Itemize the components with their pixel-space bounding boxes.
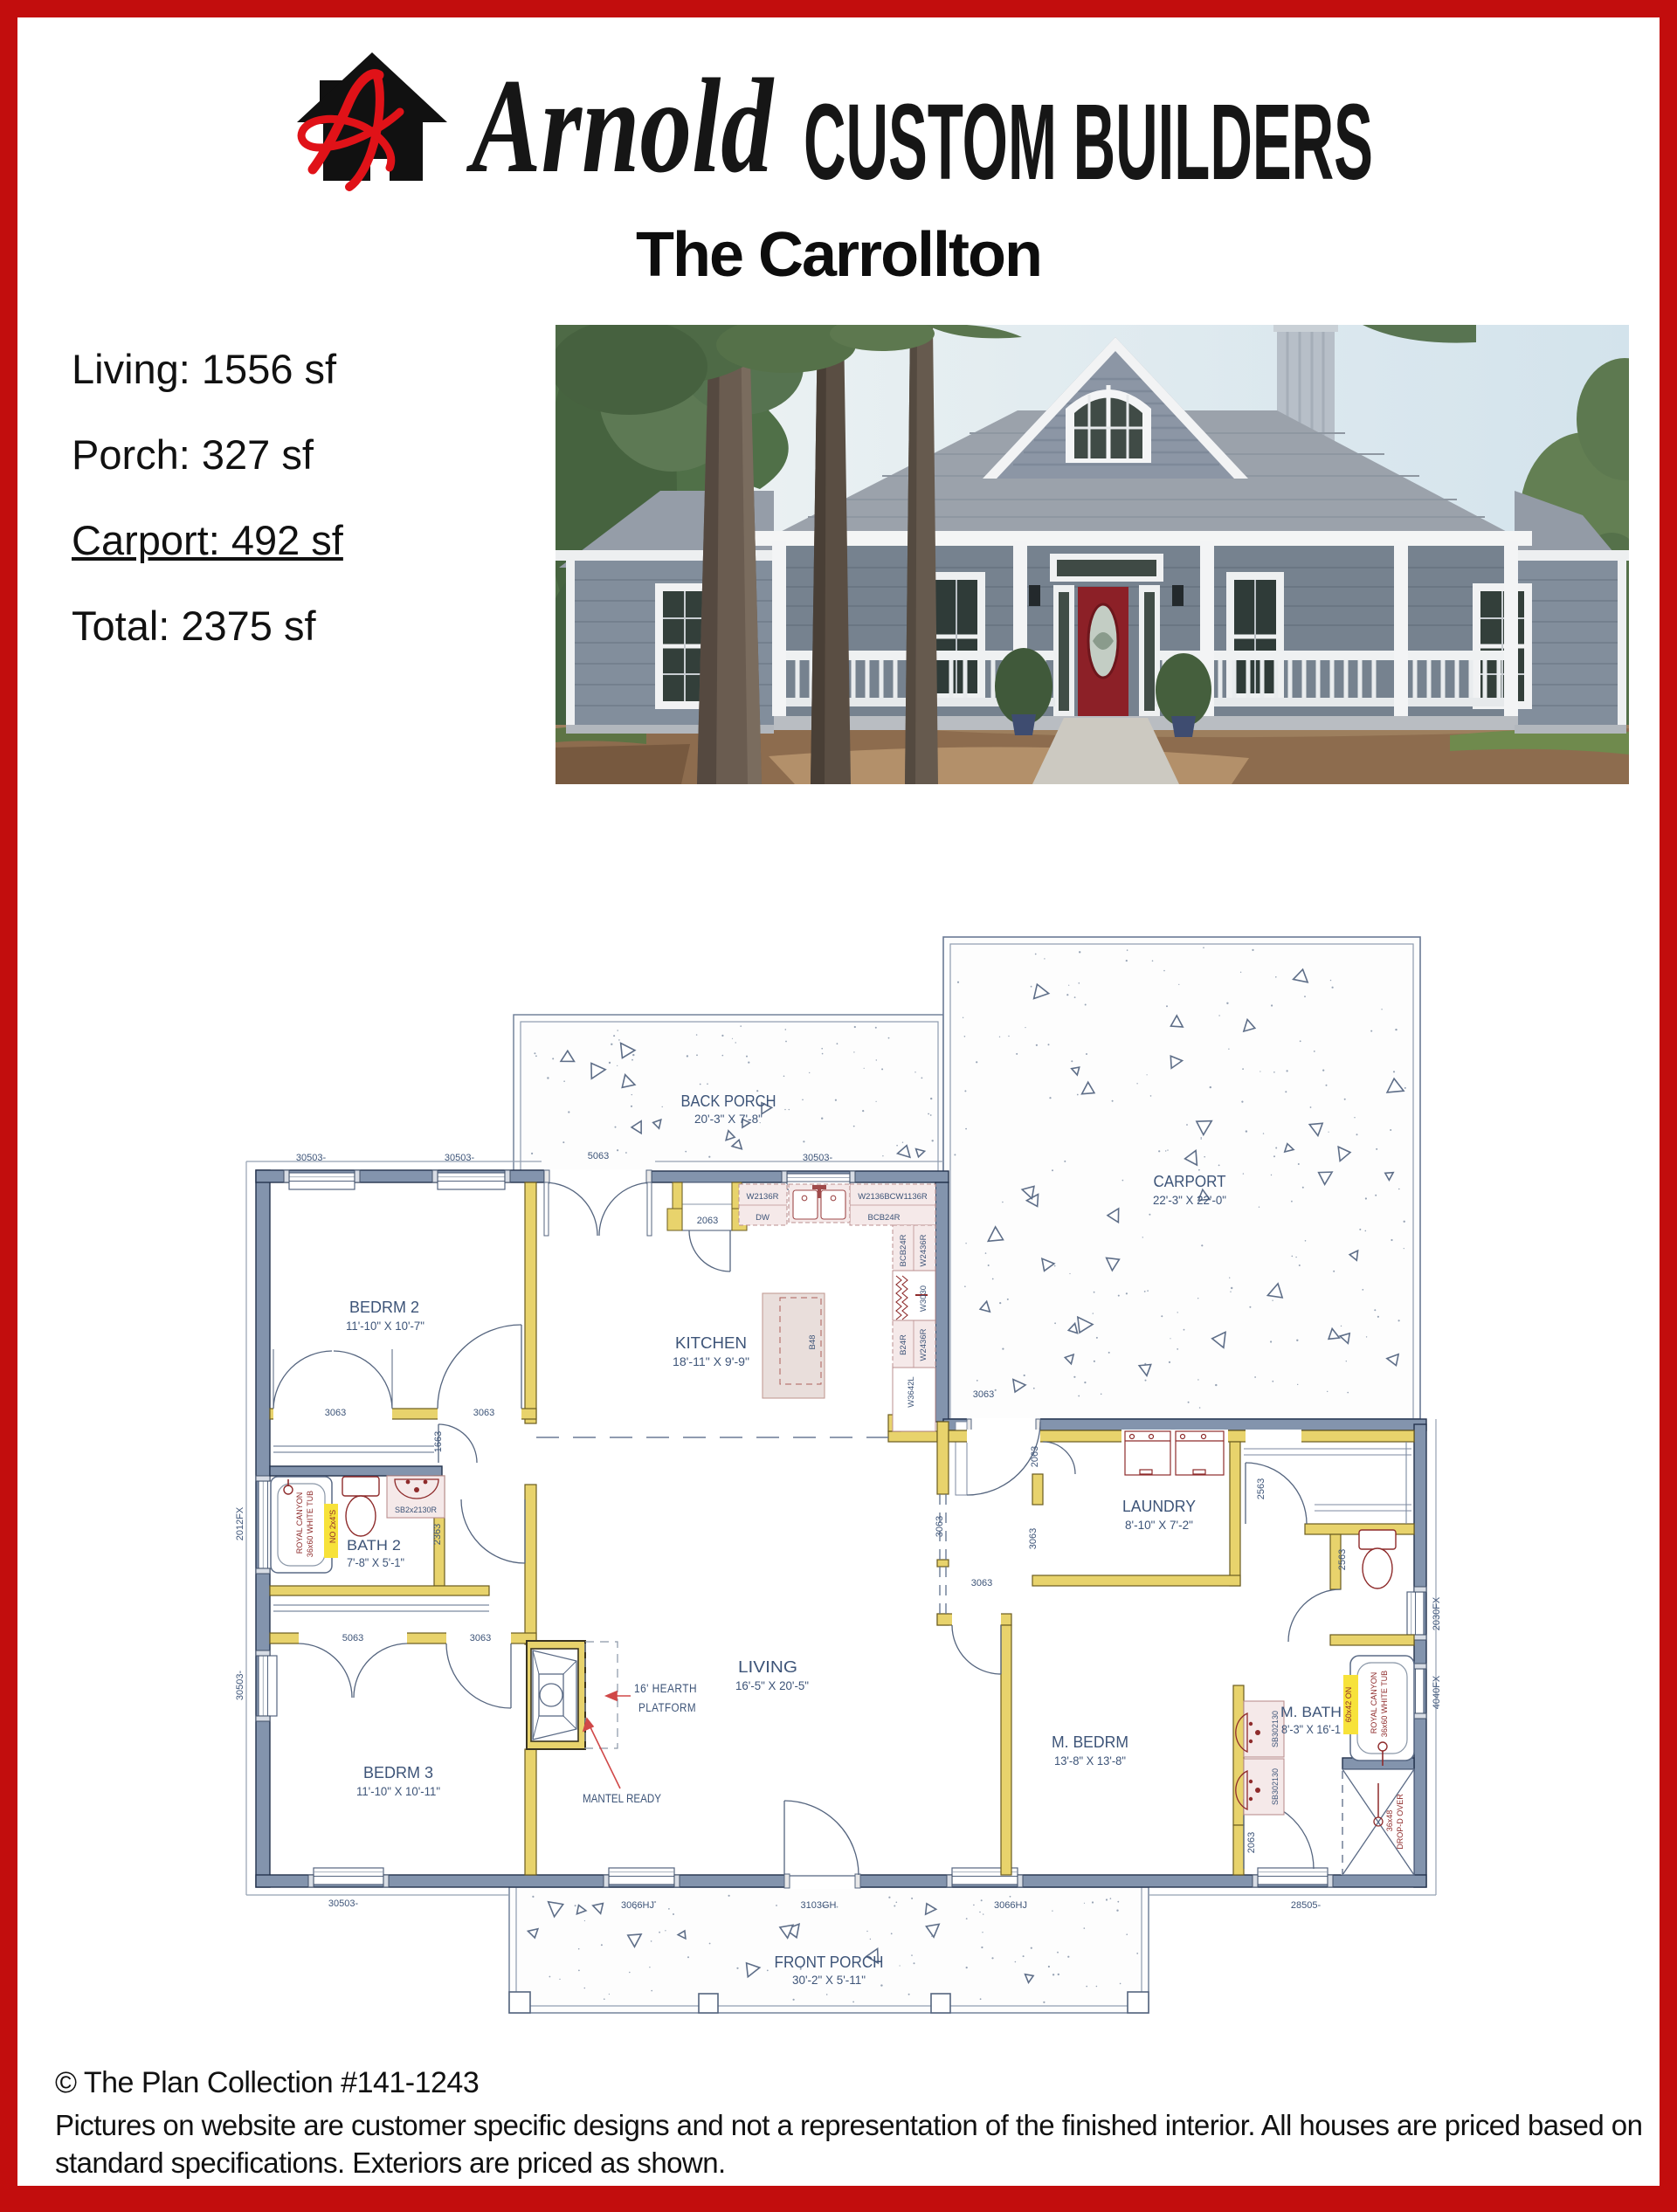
svg-text:B48: B48 — [808, 1335, 818, 1350]
svg-text:36x48: 36x48 — [1385, 1810, 1394, 1832]
svg-text:NO 2x4'S: NO 2x4'S — [328, 1510, 337, 1543]
svg-text:PLATFORM: PLATFORM — [638, 1701, 696, 1714]
svg-text:8'-3" X 16'-1: 8'-3" X 16'-1 — [1281, 1723, 1341, 1736]
svg-text:BCB24R: BCB24R — [899, 1234, 908, 1266]
svg-text:11'-10" X 10'-7": 11'-10" X 10'-7" — [346, 1319, 424, 1333]
svg-text:B24R: B24R — [899, 1334, 908, 1355]
svg-text:16' HEARTH: 16' HEARTH — [634, 1682, 697, 1695]
svg-text:60x42 ON: 60x42 ON — [1344, 1687, 1353, 1723]
svg-text:22'-3" X 22'-0": 22'-3" X 22'-0" — [1153, 1193, 1226, 1207]
svg-text:2012FX: 2012FX — [235, 1506, 245, 1540]
svg-text:BEDRM 2: BEDRM 2 — [349, 1299, 419, 1316]
svg-text:3063: 3063 — [1028, 1528, 1039, 1549]
svg-text:30503-: 30503- — [803, 1153, 833, 1163]
svg-text:30503-: 30503- — [445, 1153, 475, 1163]
svg-text:M. BEDRM: M. BEDRM — [1052, 1733, 1128, 1751]
svg-text:2063: 2063 — [1030, 1446, 1040, 1467]
svg-text:BEDRM 3: BEDRM 3 — [363, 1764, 433, 1781]
svg-text:3063: 3063 — [971, 1578, 992, 1588]
svg-text:W3030: W3030 — [919, 1285, 928, 1312]
svg-text:3063: 3063 — [935, 1516, 945, 1537]
svg-text:3066HJ: 3066HJ — [621, 1900, 654, 1911]
svg-text:2030FX: 2030FX — [1432, 1596, 1442, 1630]
svg-text:8'-10" X 7'-2": 8'-10" X 7'-2" — [1125, 1518, 1193, 1532]
svg-text:28505-: 28505- — [1291, 1900, 1322, 1911]
svg-text:M. BATH: M. BATH — [1280, 1704, 1342, 1720]
svg-text:30'-2" X 5'-11": 30'-2" X 5'-11" — [792, 1973, 866, 1987]
svg-text:SB302130: SB302130 — [1271, 1711, 1280, 1747]
svg-text:W3642L: W3642L — [907, 1376, 916, 1407]
svg-text:BACK PORCH: BACK PORCH — [681, 1092, 776, 1110]
svg-text:30503-: 30503- — [235, 1671, 245, 1701]
svg-text:2563: 2563 — [1337, 1549, 1348, 1570]
svg-text:5063: 5063 — [588, 1151, 609, 1161]
svg-text:3063: 3063 — [473, 1408, 494, 1418]
svg-text:ROYAL CANYON: ROYAL CANYON — [295, 1492, 304, 1554]
svg-text:5063: 5063 — [342, 1633, 363, 1643]
svg-text:13'-8" X 13'-8": 13'-8" X 13'-8" — [1054, 1754, 1126, 1768]
svg-text:2563: 2563 — [1256, 1478, 1266, 1499]
svg-text:W2136R: W2136R — [747, 1192, 779, 1202]
svg-text:36x60 WHITE TUB: 36x60 WHITE TUB — [1380, 1671, 1389, 1737]
svg-text:BCB24R: BCB24R — [868, 1213, 901, 1223]
svg-text:ROYAL CANYON: ROYAL CANYON — [1370, 1672, 1378, 1734]
svg-text:SB302130: SB302130 — [1271, 1768, 1280, 1805]
svg-text:3066HJ: 3066HJ — [994, 1900, 1027, 1911]
svg-text:3063: 3063 — [325, 1408, 346, 1418]
svg-text:BATH 2: BATH 2 — [347, 1537, 401, 1554]
svg-text:W2436R: W2436R — [919, 1328, 928, 1361]
svg-text:CUSTOM BUILDERS: CUSTOM BUILDERS — [804, 83, 1373, 201]
svg-text:SB2x2130R: SB2x2130R — [395, 1506, 438, 1514]
svg-text:3103GH: 3103GH — [801, 1900, 837, 1911]
svg-text:3063: 3063 — [470, 1633, 491, 1643]
svg-text:18'-11" X 9'-9": 18'-11" X 9'-9" — [673, 1354, 749, 1368]
svg-text:1663: 1663 — [433, 1431, 444, 1452]
svg-text:Arnold: Arnold — [466, 51, 775, 201]
svg-text:LIVING: LIVING — [738, 1658, 797, 1676]
svg-text:W2136BCW1136R: W2136BCW1136R — [858, 1192, 928, 1202]
svg-text:LAUNDRY: LAUNDRY — [1122, 1498, 1196, 1515]
svg-text:30503-: 30503- — [328, 1898, 359, 1909]
svg-text:CARPORT: CARPORT — [1154, 1173, 1226, 1190]
svg-text:20'-3" X 7'-8": 20'-3" X 7'-8" — [694, 1112, 763, 1126]
svg-text:W2436R: W2436R — [919, 1234, 928, 1266]
svg-text:2063: 2063 — [1246, 1832, 1257, 1853]
svg-text:MANTEL READY: MANTEL READY — [583, 1792, 661, 1805]
svg-text:7'-8" X 5'-1": 7'-8" X 5'-1" — [347, 1556, 404, 1569]
svg-text:3063: 3063 — [973, 1389, 994, 1400]
svg-text:2063: 2063 — [697, 1216, 718, 1226]
svg-text:2363: 2363 — [432, 1524, 443, 1545]
svg-text:30503-: 30503- — [296, 1153, 327, 1163]
svg-text:16'-5" X 20'-5": 16'-5" X 20'-5" — [735, 1678, 809, 1692]
svg-text:11'-10" X 10'-11": 11'-10" X 10'-11" — [356, 1784, 440, 1798]
svg-text:FRONT PORCH: FRONT PORCH — [775, 1954, 884, 1971]
svg-text:4040FX: 4040FX — [1432, 1675, 1442, 1709]
svg-text:36x60 WHITE TUB: 36x60 WHITE TUB — [306, 1491, 314, 1557]
svg-text:DROP-D OVER: DROP-D OVER — [1396, 1794, 1404, 1850]
svg-text:DW: DW — [756, 1213, 769, 1223]
svg-text:KITCHEN: KITCHEN — [675, 1334, 747, 1352]
